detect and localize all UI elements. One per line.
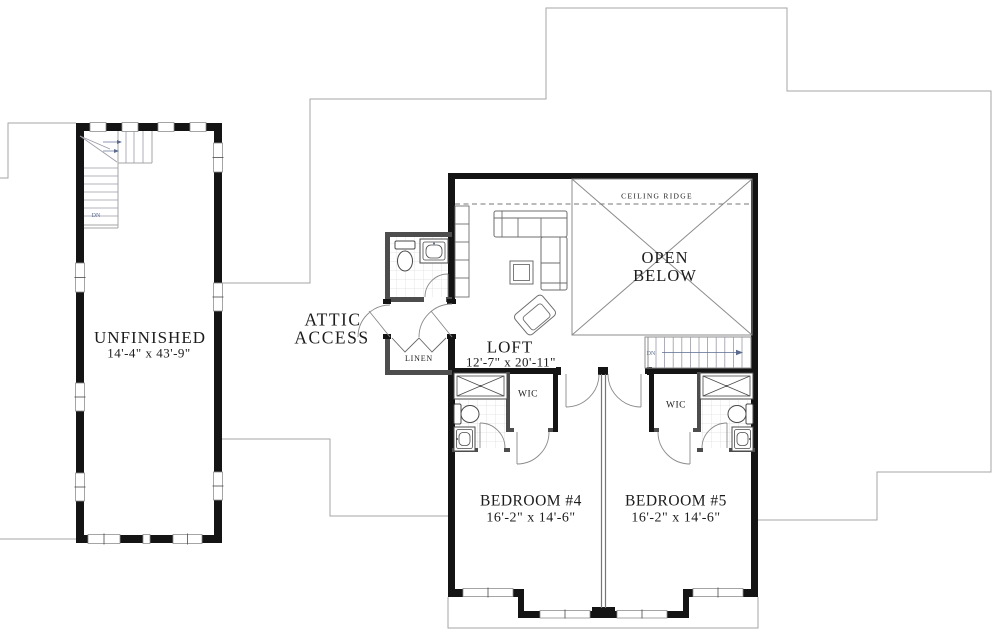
ceiling-ridge-label: CEILING RIDGE: [621, 192, 693, 201]
armchair-icon: [513, 293, 557, 336]
shower-icon-left: [454, 373, 507, 399]
sink-vanity-icon-right: [732, 427, 753, 451]
down-arrow-icon: [662, 350, 743, 355]
floor-plan-page: UNFINISHED 14'-4" x 43'-9" ATTIC ACCESS …: [0, 0, 1000, 641]
bedroom4-label: BEDROOM #4: [480, 493, 582, 510]
staircase-main: [645, 337, 751, 368]
wic-door-arc-right: [658, 432, 690, 464]
unfinished-room-dims: 14'-4" x 43'-9": [107, 346, 190, 361]
attic-access-label-line1: ATTIC: [304, 310, 361, 330]
bedroom5-door-arc: [608, 374, 641, 407]
ottoman-icon: [510, 261, 533, 284]
toilet-icon-right: [728, 404, 753, 424]
loft-shelves: [455, 206, 469, 297]
bedroom5-suite: [608, 372, 755, 464]
linen-bifold-door: [392, 338, 446, 352]
open-below-label-line1: OPEN: [641, 248, 688, 267]
dn-label-main: DN: [647, 351, 656, 357]
dn-label-unfinished: DN: [92, 213, 101, 219]
loft-dims: 12'-7" x 20'-11": [466, 355, 556, 370]
wic-left-label: WIC: [518, 390, 538, 400]
bedroom4-suite: [452, 372, 599, 464]
bedroom4-door-arc: [566, 374, 599, 407]
sink-vanity-icon-loft: [420, 239, 448, 263]
hall-door-arc: [419, 304, 452, 337]
open-below-label-line2: BELOW: [633, 266, 697, 285]
toilet-icon-left: [454, 404, 479, 424]
linen-label: LINEN: [405, 354, 433, 363]
wic-right-label: WIC: [666, 401, 686, 411]
party-wall: [602, 374, 606, 608]
bedroom4-dims: 16'-2" x 14'-6": [486, 511, 575, 526]
sink-vanity-icon-left: [454, 427, 475, 451]
bedroom5-label: BEDROOM #5: [625, 493, 727, 510]
bedroom5-dims: 16'-2" x 14'-6": [631, 511, 720, 526]
floorplan-drawing: UNFINISHED 14'-4" x 43'-9" ATTIC ACCESS …: [0, 0, 1000, 641]
wic-door-arc-left: [517, 432, 549, 464]
stair-direction-arrow-icon: [103, 140, 122, 153]
unfinished-room-label: UNFINISHED: [94, 328, 206, 347]
shower-icon-right: [700, 373, 753, 399]
attic-access-label-line2: ACCESS: [294, 328, 369, 348]
